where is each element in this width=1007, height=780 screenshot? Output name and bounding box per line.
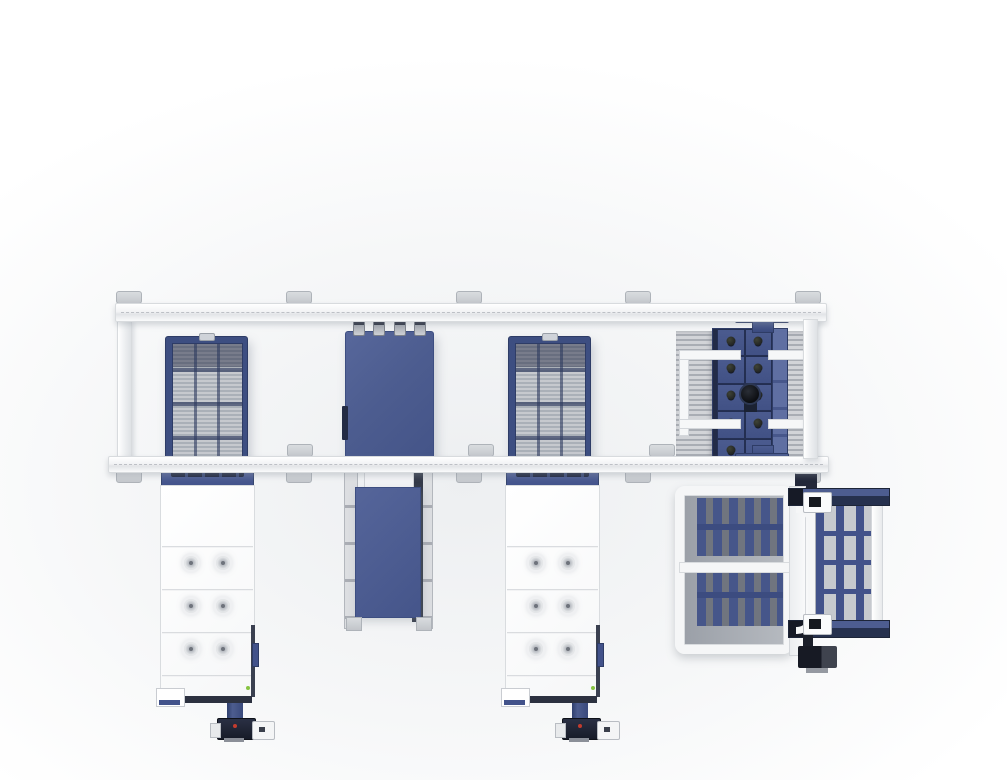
head-plate-right	[597, 721, 620, 740]
vent	[561, 642, 575, 656]
vent	[529, 556, 543, 570]
changer-clamp-top	[803, 492, 832, 513]
shuttle-conveyor	[344, 470, 432, 632]
changer-frame-crossbar	[679, 562, 791, 573]
cabinet-side-tab	[597, 643, 604, 667]
slat-pallet-left	[165, 336, 248, 464]
cabinet-head-unit	[217, 718, 256, 740]
changer-motor-foot	[806, 668, 828, 673]
conveyor-foot	[346, 617, 362, 631]
changer-tube-right	[871, 502, 883, 624]
vent	[216, 642, 230, 656]
pallet-slat-bed	[515, 343, 586, 459]
cabinet-panel-seam	[162, 546, 253, 548]
pallet-grid-divider	[194, 344, 197, 458]
vent	[529, 599, 543, 613]
laser-cabinet-right	[505, 467, 600, 742]
vent	[184, 556, 198, 570]
head-plate-right	[252, 721, 275, 740]
pallet-grid-divider	[173, 402, 242, 406]
vent	[184, 642, 198, 656]
laser-cabinet-left	[160, 467, 255, 742]
conveyor-blue-bed	[355, 487, 421, 618]
slat-pallet-right	[508, 336, 591, 464]
pallet-grid-divider	[560, 344, 563, 458]
changer-clamp-bottom	[803, 614, 832, 635]
cabinet-panel-seam	[162, 675, 253, 677]
fork-cell	[745, 356, 773, 383]
pallet-latch	[542, 333, 558, 341]
fork-white-bracket-arm	[679, 350, 741, 360]
cabinet-body	[160, 485, 255, 698]
sheet-shuttle-plate	[345, 331, 434, 461]
fork-unloader	[674, 307, 816, 471]
pallet-grid-divider	[217, 344, 220, 458]
cabinet-panel-seam	[507, 675, 598, 677]
gantry-post-right	[803, 319, 818, 459]
rung	[816, 589, 878, 594]
vent	[561, 556, 575, 570]
pallet-grid-divider	[516, 368, 585, 372]
cabinet-side-tab	[252, 643, 259, 667]
fork-cell	[717, 356, 745, 383]
pallet-changer	[675, 474, 890, 674]
gantry-post-left	[117, 319, 132, 459]
status-led-green	[591, 686, 595, 690]
cabinet-corner-box	[501, 688, 530, 707]
cabinet-vent-grid	[529, 556, 575, 656]
vent	[216, 599, 230, 613]
pallet-shade	[516, 344, 585, 367]
status-led-red	[233, 724, 237, 728]
production-line-render	[0, 0, 1007, 780]
changer-drive-motor	[798, 646, 837, 668]
rung	[816, 560, 878, 565]
pallet-shade	[173, 344, 242, 367]
head-plate-left	[210, 723, 221, 738]
rung	[816, 531, 878, 536]
head-foot	[224, 738, 244, 742]
cabinet-head-unit	[562, 718, 601, 740]
fork-rotary-hub	[739, 383, 761, 405]
vent	[561, 599, 575, 613]
changer-ladder-pallet	[815, 504, 879, 622]
pallet-grid-divider	[537, 344, 540, 458]
status-led-red	[578, 724, 582, 728]
vent	[184, 599, 198, 613]
pallet-grid-divider	[516, 436, 585, 440]
conveyor-foot	[416, 617, 432, 631]
head-plate-left	[555, 723, 566, 738]
pallet-grid-divider	[173, 368, 242, 372]
cabinet-body	[505, 485, 600, 698]
pallet-grid-divider	[173, 436, 242, 440]
gantry-rail-bottom	[108, 456, 829, 473]
cabinet-panel-seam	[507, 546, 598, 548]
cabinet-corner-box	[156, 688, 185, 707]
vent	[216, 556, 230, 570]
pallet-grid-divider	[516, 402, 585, 406]
gantry-rail-top	[115, 303, 827, 322]
fork-white-bracket-arm	[679, 419, 741, 429]
cabinet-vent-grid	[184, 556, 230, 656]
vent	[529, 642, 543, 656]
pallet-latch	[199, 333, 215, 341]
pallet-slat-bed	[172, 343, 243, 459]
plate-side-latch	[342, 406, 348, 440]
head-foot	[569, 738, 589, 742]
status-led-green	[246, 686, 250, 690]
